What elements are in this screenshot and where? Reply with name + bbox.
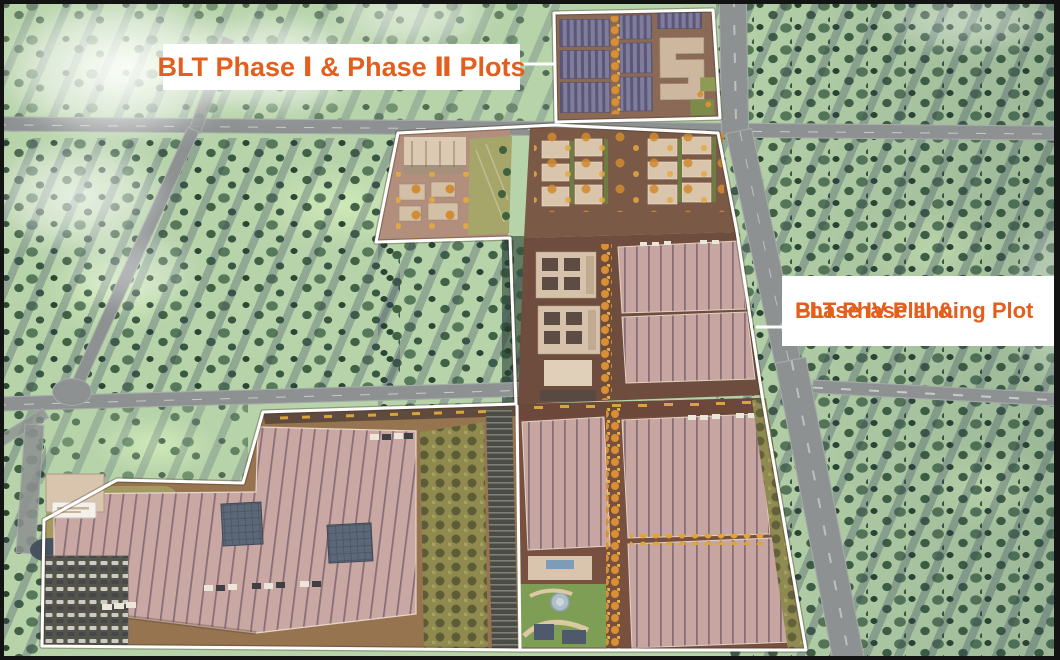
- phase-1-2-plot: [554, 10, 720, 122]
- bottom-right-warehouses: [518, 398, 804, 650]
- upper-factory-rows: [534, 132, 724, 212]
- label-phase-1-2: BLT Phase Ⅰ & Phase Ⅱ Plots: [163, 44, 520, 90]
- factory-building: [30, 404, 518, 650]
- aerial-masterplan-rendering: BLT Phase Ⅰ & Phase Ⅱ Plots BLT Phase II…: [0, 0, 1060, 660]
- label-phase-3-4: BLT Phase III & Phase IV Planning Plot: [782, 276, 1060, 346]
- label-phase-3-4-line2: Phase IV Planning Plot: [795, 297, 1033, 326]
- lower-offices-warehouses: [536, 240, 755, 401]
- label-phase-1-2-text: BLT Phase Ⅰ & Phase Ⅱ Plots: [158, 52, 526, 83]
- campus-buildings: [396, 136, 512, 238]
